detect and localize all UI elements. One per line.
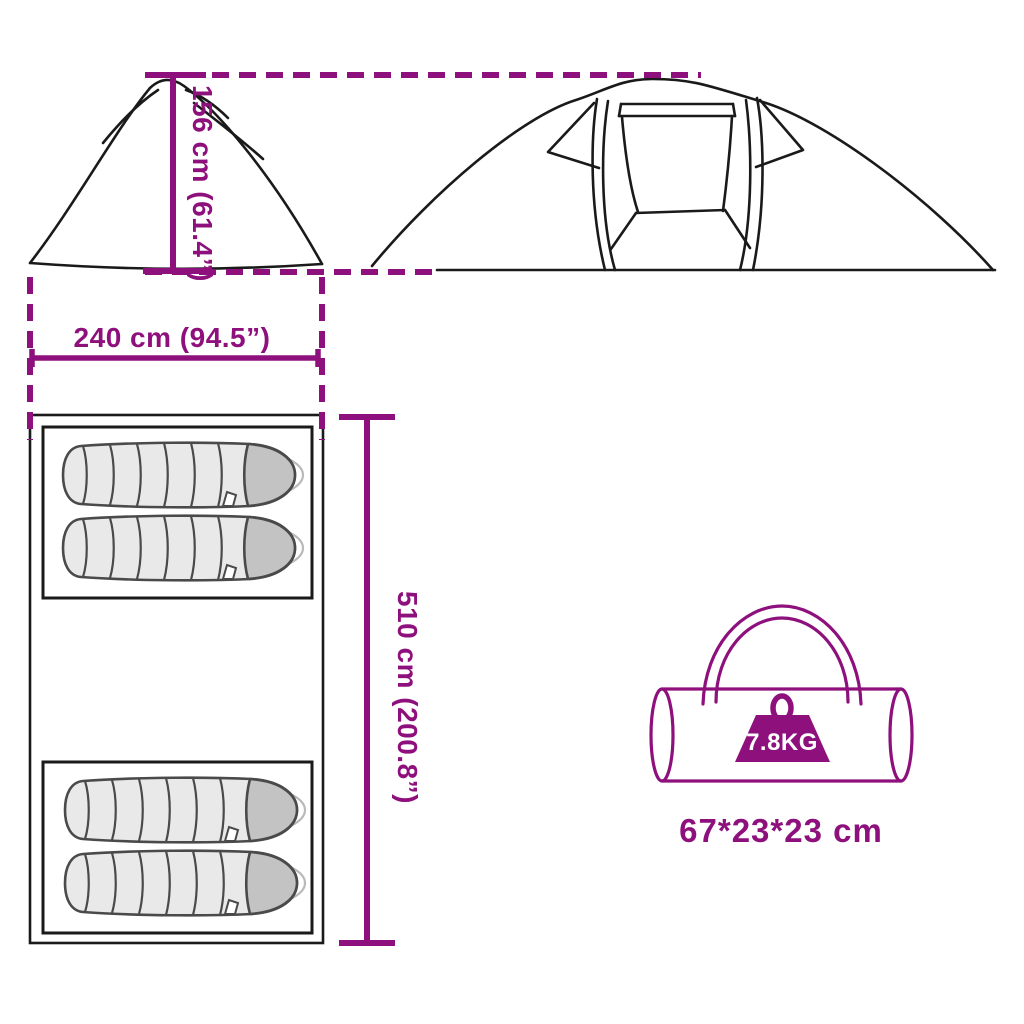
door-opening-left: [622, 117, 638, 212]
front-tent-dome-outline: [372, 79, 993, 270]
door-lintel-right-edge: [733, 104, 735, 116]
door-opening-right: [723, 116, 732, 211]
height-dimension-label: 156 cm (61.4”): [187, 85, 218, 282]
carry-bag: 7.8KG: [651, 606, 912, 781]
tent-front-view: [372, 79, 995, 270]
sleeping-bag: [65, 778, 305, 843]
sleeping-bag: [65, 851, 305, 916]
width-dimension-label: 240 cm (94.5”): [74, 322, 271, 353]
door-floor-edge: [636, 210, 725, 213]
door-lintel-left-edge: [619, 104, 621, 116]
tent-floor-plan: [30, 415, 323, 943]
diagram-svg: 156 cm (61.4”) 240 cm (94.5”) 510 cm (20…: [0, 0, 1024, 1024]
door-frame-right-outer: [753, 98, 763, 270]
carry-bag-left-end: [651, 689, 673, 781]
bag-size-label: 67*23*23 cm: [679, 812, 883, 849]
weight-label: 7.8KG: [746, 729, 818, 756]
length-dimension-label: 510 cm (200.8”): [392, 591, 423, 804]
weight-icon: 7.8KG: [735, 696, 830, 762]
sleeping-bag: [63, 516, 303, 581]
tent-dimension-diagram: 156 cm (61.4”) 240 cm (94.5”) 510 cm (20…: [0, 0, 1024, 1024]
door-floor-left-slant: [611, 213, 636, 249]
sleeping-bag: [63, 443, 303, 508]
carry-bag-right-end: [890, 689, 912, 781]
